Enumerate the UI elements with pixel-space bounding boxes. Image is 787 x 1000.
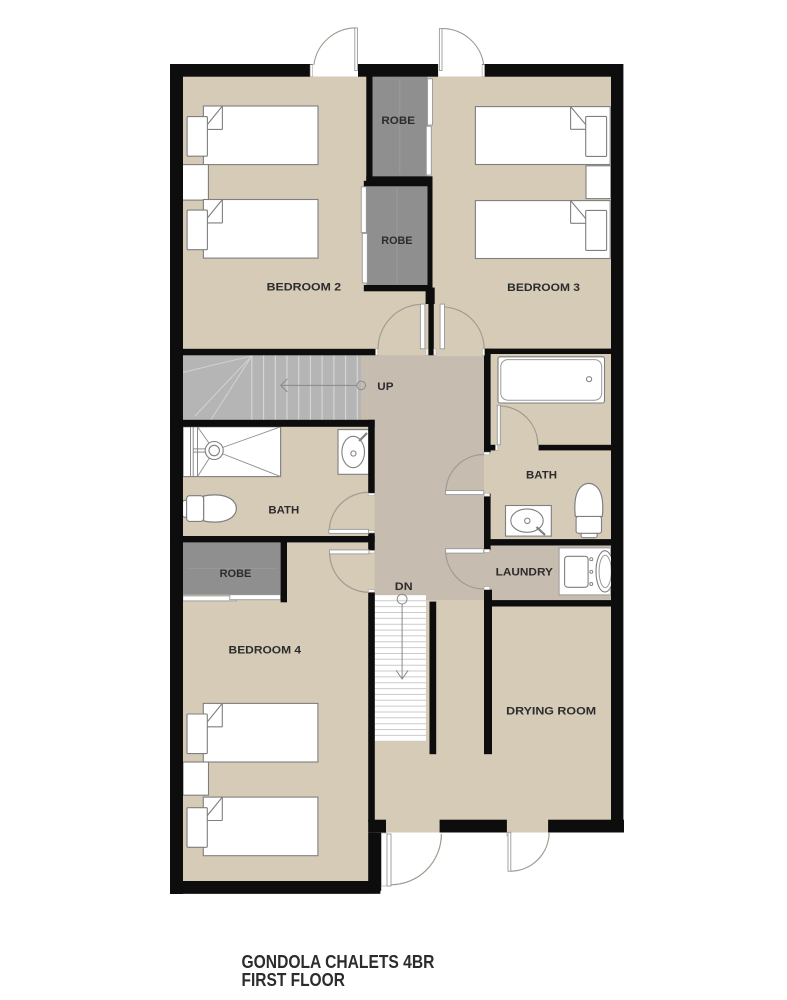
svg-text:DN: DN (395, 581, 413, 593)
svg-text:BATH: BATH (268, 504, 299, 516)
svg-text:FIRST FLOOR: FIRST FLOOR (242, 970, 345, 990)
svg-text:BEDROOM 3: BEDROOM 3 (507, 282, 580, 294)
svg-text:GONDOLA CHALETS 4BR: GONDOLA CHALETS 4BR (242, 952, 435, 972)
svg-text:ROBE: ROBE (381, 115, 415, 127)
svg-text:BEDROOM 4: BEDROOM 4 (229, 644, 302, 656)
svg-text:LAUNDRY: LAUNDRY (496, 566, 554, 578)
svg-text:ROBE: ROBE (220, 568, 252, 580)
svg-text:ROBE: ROBE (381, 235, 412, 247)
svg-text:BATH: BATH (526, 470, 557, 482)
svg-text:DRYING ROOM: DRYING ROOM (506, 706, 596, 718)
svg-text:UP: UP (377, 381, 393, 393)
svg-text:BEDROOM 2: BEDROOM 2 (267, 282, 341, 294)
